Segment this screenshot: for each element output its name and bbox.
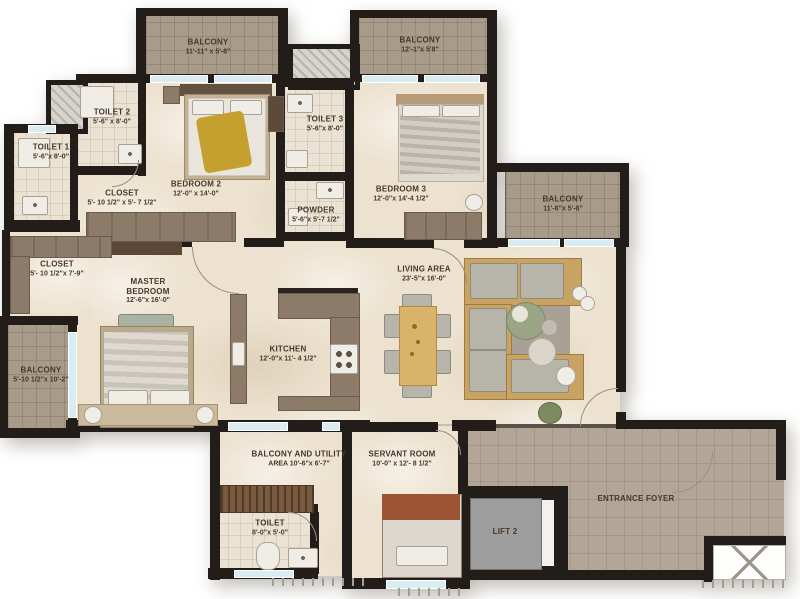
wall-segment xyxy=(497,163,629,172)
room-label-closet-2: CLOSET 5'- 10 1/2"x 7'-9" xyxy=(2,260,112,279)
room-label-toilet-1: TOILET 1 5'-6"x 8'-0" xyxy=(11,143,91,162)
table-decor xyxy=(410,352,414,356)
wall-segment xyxy=(350,10,359,82)
railing xyxy=(398,588,462,596)
wall-segment xyxy=(136,8,146,82)
room-dims: 11'-11" x 5'-8" xyxy=(148,47,268,56)
window xyxy=(234,570,294,578)
room-dims: 5'-6"x 8'-0" xyxy=(290,124,360,133)
room-label-balcony-utility: BALCONY AND UTILITY AREA 10'-6"x 6'-7" xyxy=(244,450,354,469)
window xyxy=(564,239,614,247)
floor-plan: BALCONY 11'-11" x 5'-8" BALCONY 12'-1"x … xyxy=(0,0,800,599)
window xyxy=(228,422,288,431)
room-name: POWDER xyxy=(276,206,356,216)
window xyxy=(28,125,56,133)
room-dims: 5'-6"x 8'-0" xyxy=(11,152,91,161)
room-name: BALCONY AND UTILITY xyxy=(244,450,354,460)
room-dims: 5'-10 1/2"x 10'-2" xyxy=(6,375,76,384)
room-dims: AREA 10'-6"x 6'-7" xyxy=(244,459,354,468)
dining-table xyxy=(399,306,437,386)
window xyxy=(424,75,480,83)
lift-door xyxy=(542,500,554,566)
room-label-balcony-top-left: BALCONY 11'-11" x 5'-8" xyxy=(148,38,268,57)
room-name: TOILET 1 xyxy=(11,143,91,153)
sofa-cushion xyxy=(469,308,507,350)
room-name: LIVING AREA xyxy=(369,265,479,275)
room-dims: 5'-6"x 5'-7 1/2" xyxy=(276,215,356,224)
closet2-wardrobe xyxy=(10,236,112,258)
table-decor xyxy=(412,324,417,329)
room-name: TOILET 2 xyxy=(67,108,157,118)
room-label-toilet-2: TOILET 2 5'-6" x 8'-0" xyxy=(67,108,157,127)
room-name: MASTER BEDROOM xyxy=(116,277,180,296)
wall-segment xyxy=(278,8,288,82)
room-dims: 8'-0"x 5'-0" xyxy=(230,528,310,537)
window xyxy=(508,239,560,247)
pillow xyxy=(396,546,448,566)
room-name: BALCONY xyxy=(360,36,480,46)
room-label-servant-room: SERVANT ROOM 10'-0" x 12'- 8 1/2" xyxy=(347,450,457,469)
wc xyxy=(256,542,280,570)
room-name: SERVANT ROOM xyxy=(347,450,457,460)
round-pillow xyxy=(556,366,576,386)
room-name: BEDROOM 2 xyxy=(146,180,246,190)
room-label-toilet-3: TOILET 3 5'-6"x 8'-0" xyxy=(290,115,360,134)
room-label-balcony-left: BALCONY 5'-10 1/2"x 10'-2" xyxy=(6,366,76,385)
room-label-kitchen: KITCHEN 12'-0"x 11'- 4 1/2" xyxy=(238,345,338,364)
room-label-bedroom-3: BEDROOM 3 12'-0"x 14'-4 1/2" xyxy=(346,185,456,204)
wall-segment xyxy=(704,536,786,545)
room-name: BALCONY xyxy=(513,195,613,205)
window xyxy=(322,422,340,431)
window xyxy=(362,75,418,83)
wall-segment xyxy=(776,420,786,480)
room-dims: 12'-6"x 16'-0" xyxy=(116,296,180,305)
wall-segment xyxy=(278,78,354,87)
room-name: TOILET 3 xyxy=(290,115,360,125)
sink xyxy=(316,182,344,199)
coffee-table-round xyxy=(506,302,546,340)
room-label-entrance-foyer: ENTRANCE FOYER xyxy=(576,494,696,504)
room-label-balcony-top-right: BALCONY 12'-1"x 5'8" xyxy=(360,36,480,55)
table-decor xyxy=(416,340,420,344)
sofa-cushion xyxy=(520,263,564,299)
wall-segment xyxy=(136,8,288,16)
wall-segment xyxy=(616,420,786,429)
floor-lamp xyxy=(580,296,595,311)
pillow xyxy=(192,100,224,115)
wall-segment xyxy=(283,172,345,181)
wall-segment xyxy=(350,10,496,18)
railing xyxy=(272,578,368,586)
room-label-living-area: LIVING AREA 23'-5"x 16'-0" xyxy=(369,265,479,284)
room-name: ENTRANCE FOYER xyxy=(576,494,696,504)
room-dims: 5'- 10 1/2"x 7'-9" xyxy=(2,269,112,278)
room-label-toilet-bottom: TOILET 8'-0"x 5'-0" xyxy=(230,519,310,538)
master-tv-console xyxy=(112,242,182,255)
round-pillow xyxy=(196,406,214,424)
room-dims: 12'-1"x 5'8" xyxy=(360,45,480,54)
stair-landing xyxy=(713,545,786,580)
kitchen-counter-top xyxy=(278,293,360,319)
wall-segment xyxy=(558,570,710,580)
room-dims: 12'-0"x 11'- 4 1/2" xyxy=(238,354,338,363)
side-table xyxy=(465,194,483,211)
window xyxy=(214,75,272,83)
round-pillow xyxy=(84,406,102,424)
room-name: TOILET xyxy=(230,519,310,529)
side-table-round xyxy=(528,338,556,366)
room-label-balcony-right: BALCONY 11'-8"x 5'-8" xyxy=(513,195,613,214)
wc xyxy=(286,150,308,168)
room-name: CLOSET xyxy=(2,260,112,270)
kitchen-counter-bottom xyxy=(278,396,360,411)
plant xyxy=(538,402,562,424)
room-dims: 5'-6" x 8'-0" xyxy=(67,117,157,126)
room-name: BALCONY xyxy=(6,366,76,376)
railing xyxy=(702,580,784,588)
room-dims: 23'-5"x 16'-0" xyxy=(369,274,479,283)
wall-segment xyxy=(4,124,14,230)
wall-segment xyxy=(487,70,497,248)
servant-bed-blanket xyxy=(382,494,460,520)
sink xyxy=(287,94,313,113)
wall-segment xyxy=(276,232,354,241)
bedroom3-blanket xyxy=(400,114,480,174)
room-dims: 12'-0"x 14'-4 1/2" xyxy=(346,194,456,203)
room-label-master-bedroom: MASTER BEDROOM 12'-6"x 16'-0" xyxy=(116,277,180,305)
room-dims: 11'-8"x 5'-8" xyxy=(513,204,613,213)
wc xyxy=(22,196,48,215)
wall-segment xyxy=(616,240,626,392)
room-dims: 10'-0" x 12'- 8 1/2" xyxy=(347,459,457,468)
pillow xyxy=(442,105,480,117)
window xyxy=(150,75,208,83)
floor-plan-canvas: BALCONY 11'-11" x 5'-8" BALCONY 12'-1"x … xyxy=(0,0,800,599)
side-table-round xyxy=(542,320,557,335)
wall-segment xyxy=(452,420,496,431)
room-dims: 5'- 10 1/2" x 5'- 7 1/2" xyxy=(62,198,182,207)
room-name: LIFT 2 xyxy=(475,527,535,537)
wall-segment xyxy=(210,426,220,580)
room-name: BALCONY xyxy=(148,38,268,48)
wall-segment xyxy=(704,536,713,582)
pillow xyxy=(402,105,440,117)
coffee-table-decor xyxy=(512,306,528,322)
bedroom2-yellow-throw xyxy=(196,110,253,173)
room-label-bedroom-2: BEDROOM 2 12'-0" x 14'-0" xyxy=(146,180,246,199)
wall-segment xyxy=(4,220,80,232)
nightstand xyxy=(163,86,180,104)
room-label-lift-2: LIFT 2 xyxy=(475,527,535,537)
bedroom3-dresser xyxy=(404,212,482,240)
utility-planter xyxy=(220,485,314,513)
room-name: KITCHEN xyxy=(238,345,338,355)
wall-segment xyxy=(620,163,629,247)
sofa-cushion xyxy=(469,350,507,392)
room-label-powder: POWDER 5'-6"x 5'-7 1/2" xyxy=(276,206,356,225)
room-dims: 12'-0" x 14'-0" xyxy=(146,189,246,198)
wardrobe xyxy=(268,96,284,132)
wall-segment xyxy=(0,316,78,325)
sink xyxy=(288,548,318,568)
room-name: BEDROOM 3 xyxy=(346,185,456,195)
wall-segment xyxy=(366,422,438,432)
